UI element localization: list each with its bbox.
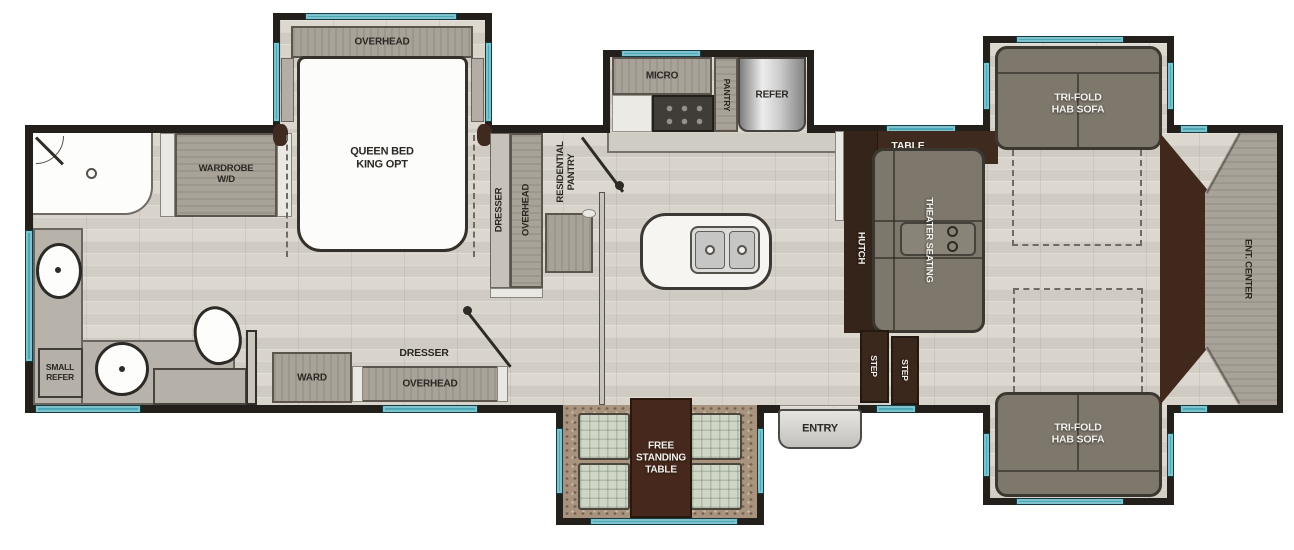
nightstand-left — [281, 58, 294, 122]
slide-travel-dashed-bottom — [1013, 288, 1143, 392]
bedroom-door-hinge — [615, 181, 624, 190]
residential-pantry-cabinet — [545, 213, 593, 273]
window-sofa-top-right — [1167, 62, 1174, 110]
stove-burners — [660, 100, 706, 127]
hall-door-hinge — [463, 306, 472, 315]
step-1-label: STEP — [869, 355, 879, 376]
window-bed-right — [485, 42, 492, 122]
window-dinette-bottom — [590, 518, 738, 525]
residential-pantry-cap — [582, 209, 596, 218]
dinette-chair-bottom-right — [690, 463, 742, 510]
queen-bed-label: QUEEN BED KING OPT — [350, 145, 414, 170]
bedroom-partition-wall — [599, 192, 605, 405]
window-bed-left — [273, 42, 280, 122]
window-sofa-bottom-left — [983, 433, 990, 477]
window-bed-top — [305, 13, 457, 20]
window-sofa-bottom-right — [1167, 433, 1174, 477]
shower-drain — [86, 168, 97, 179]
refer-label: REFER — [756, 89, 789, 101]
hutch-label: HUTCH — [855, 232, 866, 264]
window-bottom-entry — [876, 405, 916, 413]
bed-slide-dashline-left — [286, 135, 288, 257]
window-sofa-top — [1016, 36, 1124, 43]
bed-overhead-label: OVERHEAD — [354, 36, 409, 48]
pantry-label: PANTRY — [721, 79, 731, 112]
residential-pantry-label: RESIDENTIAL PANTRY — [556, 141, 578, 202]
window-topwall-rear — [1180, 125, 1208, 133]
island-sink-drain-left — [705, 245, 715, 255]
wardrobe-label: WARDROBE W/D — [199, 164, 254, 186]
hall-overhead-cap-right — [497, 366, 508, 402]
bed-slide-dashline-right — [473, 135, 475, 257]
free-standing-table-label: FREE STANDING TABLE — [636, 440, 686, 475]
window-dinette-left — [556, 428, 563, 494]
slide-travel-dashed-top — [1012, 140, 1142, 246]
small-refer-label: SMALL REFER — [46, 363, 74, 383]
trifold-sofa-bottom-back-seam — [998, 470, 1159, 472]
window-bottom-rear — [1180, 405, 1208, 413]
bedroom-overhead-label: OVERHEAD — [522, 184, 533, 236]
ent-center-label: ENT. CENTER — [1242, 239, 1253, 299]
kitchen-counter-ledge — [607, 133, 843, 153]
theater-cupholder-1 — [947, 226, 958, 237]
window-bottom-bath — [35, 405, 141, 413]
bath-sink-round-faucet — [119, 366, 125, 372]
theater-backrest-line — [893, 151, 895, 330]
window-kitchen-top — [621, 50, 701, 57]
wardrobe-cap-left — [160, 133, 175, 217]
hall-dresser-label: DRESSER — [399, 347, 448, 359]
dinette-chair-top-right — [690, 413, 742, 460]
hutch-pilaster — [835, 131, 844, 221]
rv-floorplan: ENTRY SMALL REFER WARDROBE W/D OVERHEAD … — [0, 0, 1294, 550]
island-sink-drain-right — [737, 245, 747, 255]
bedroom-dresser-endcap — [490, 288, 543, 298]
dinette-chair-bottom-left — [578, 463, 630, 510]
entry-label: ENTRY — [802, 423, 838, 436]
window-sofa-bottom — [1016, 498, 1124, 505]
window-left-wall — [25, 230, 33, 362]
toilet-bench — [153, 368, 247, 405]
window-bottom-hall — [382, 405, 478, 413]
step-2-label: STEP — [900, 359, 910, 380]
nightstand-right — [471, 58, 484, 122]
hall-overhead-cap-left — [352, 366, 363, 402]
ward-label: WARD — [297, 372, 327, 384]
theater-seating-label: THEATER SEATING — [923, 197, 934, 282]
bath-sink-oval-faucet — [55, 267, 61, 273]
trifold-sofa-top-label: TRI-FOLD HAB SOFA — [1052, 92, 1105, 117]
window-dinette-right — [757, 428, 764, 494]
window-sofa-top-left — [983, 62, 990, 110]
bath-partition-wall — [246, 330, 257, 405]
trifold-sofa-bottom-label: TRI-FOLD HAB SOFA — [1052, 422, 1105, 447]
dinette-chair-top-left — [578, 413, 630, 460]
bedroom-dresser-label: DRESSER — [495, 188, 506, 233]
theater-cupholder-2 — [947, 241, 958, 252]
hall-overhead-label: OVERHEAD — [402, 378, 457, 390]
theater-console — [900, 222, 976, 256]
kitchen-counter-white — [612, 95, 652, 132]
micro-label: MICRO — [646, 70, 678, 82]
